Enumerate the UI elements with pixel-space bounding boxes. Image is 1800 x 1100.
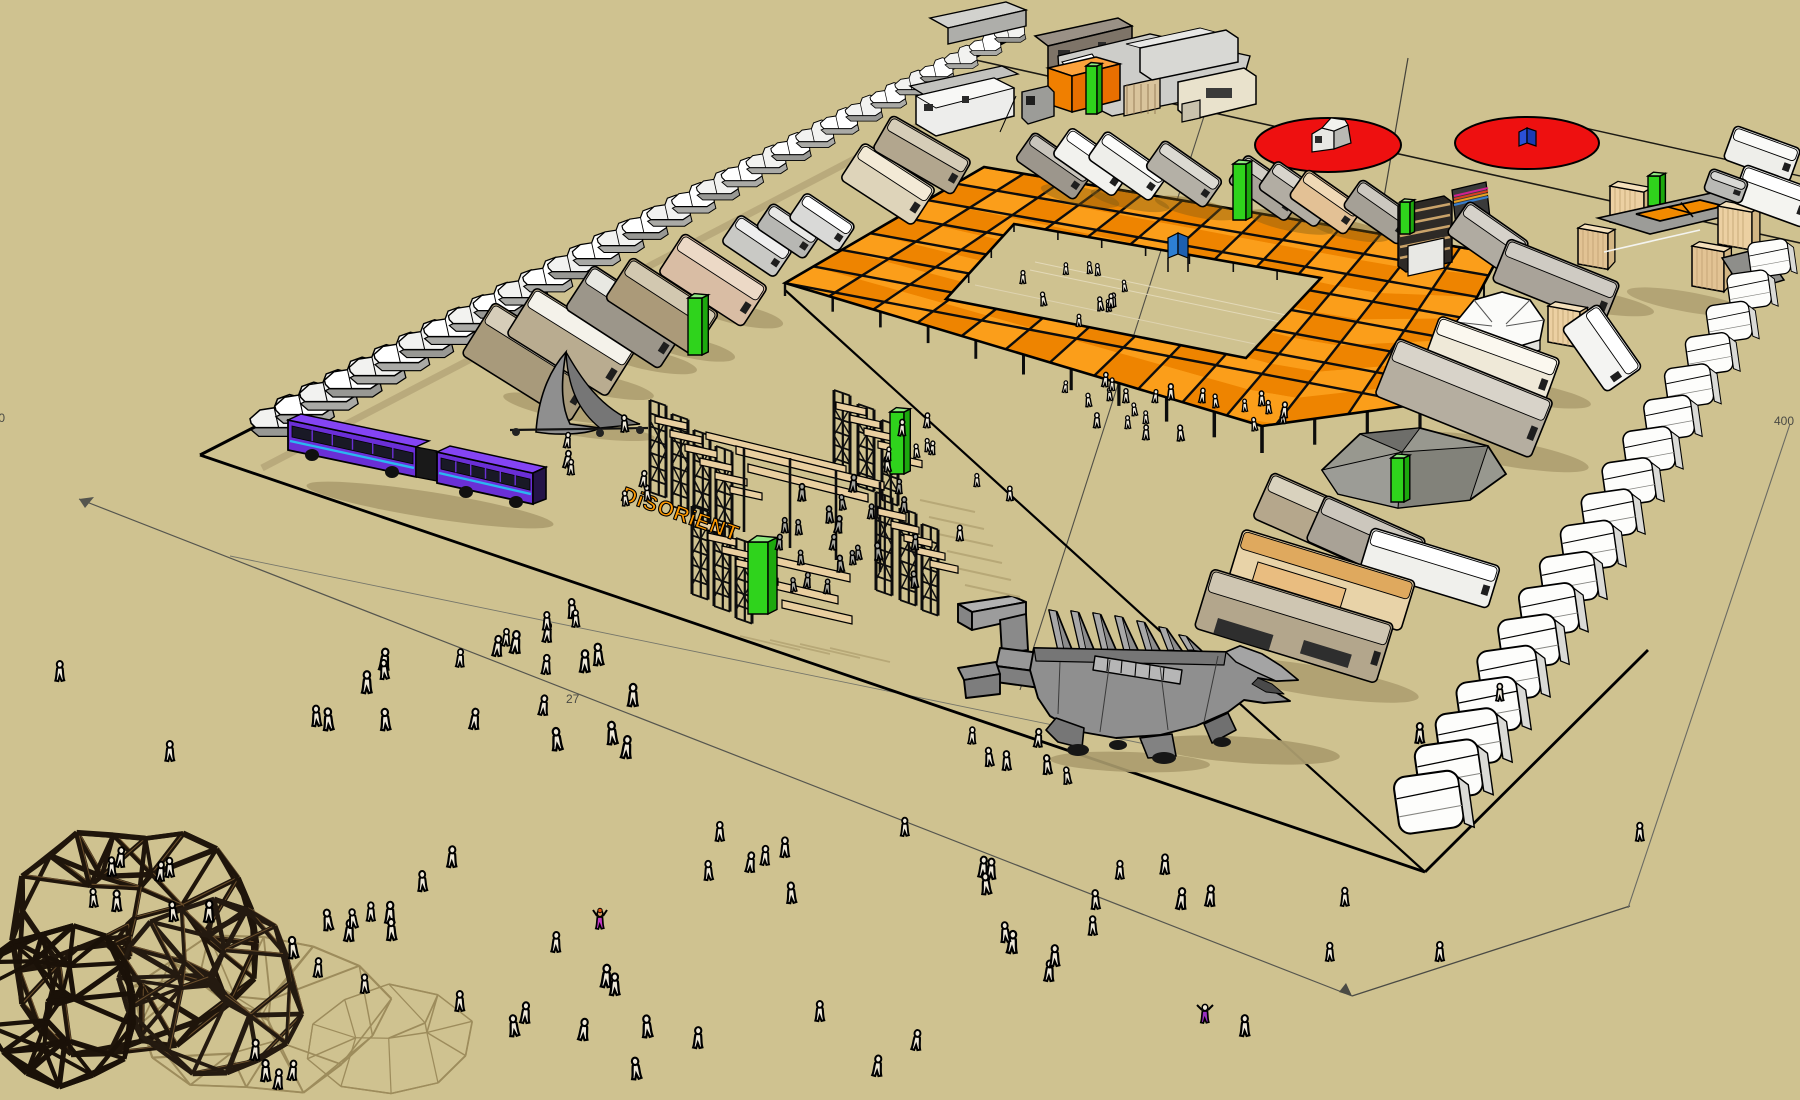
svg-text:400: 400 (0, 411, 5, 425)
svg-text:27: 27 (566, 692, 580, 706)
svg-text:400: 400 (1774, 414, 1794, 428)
